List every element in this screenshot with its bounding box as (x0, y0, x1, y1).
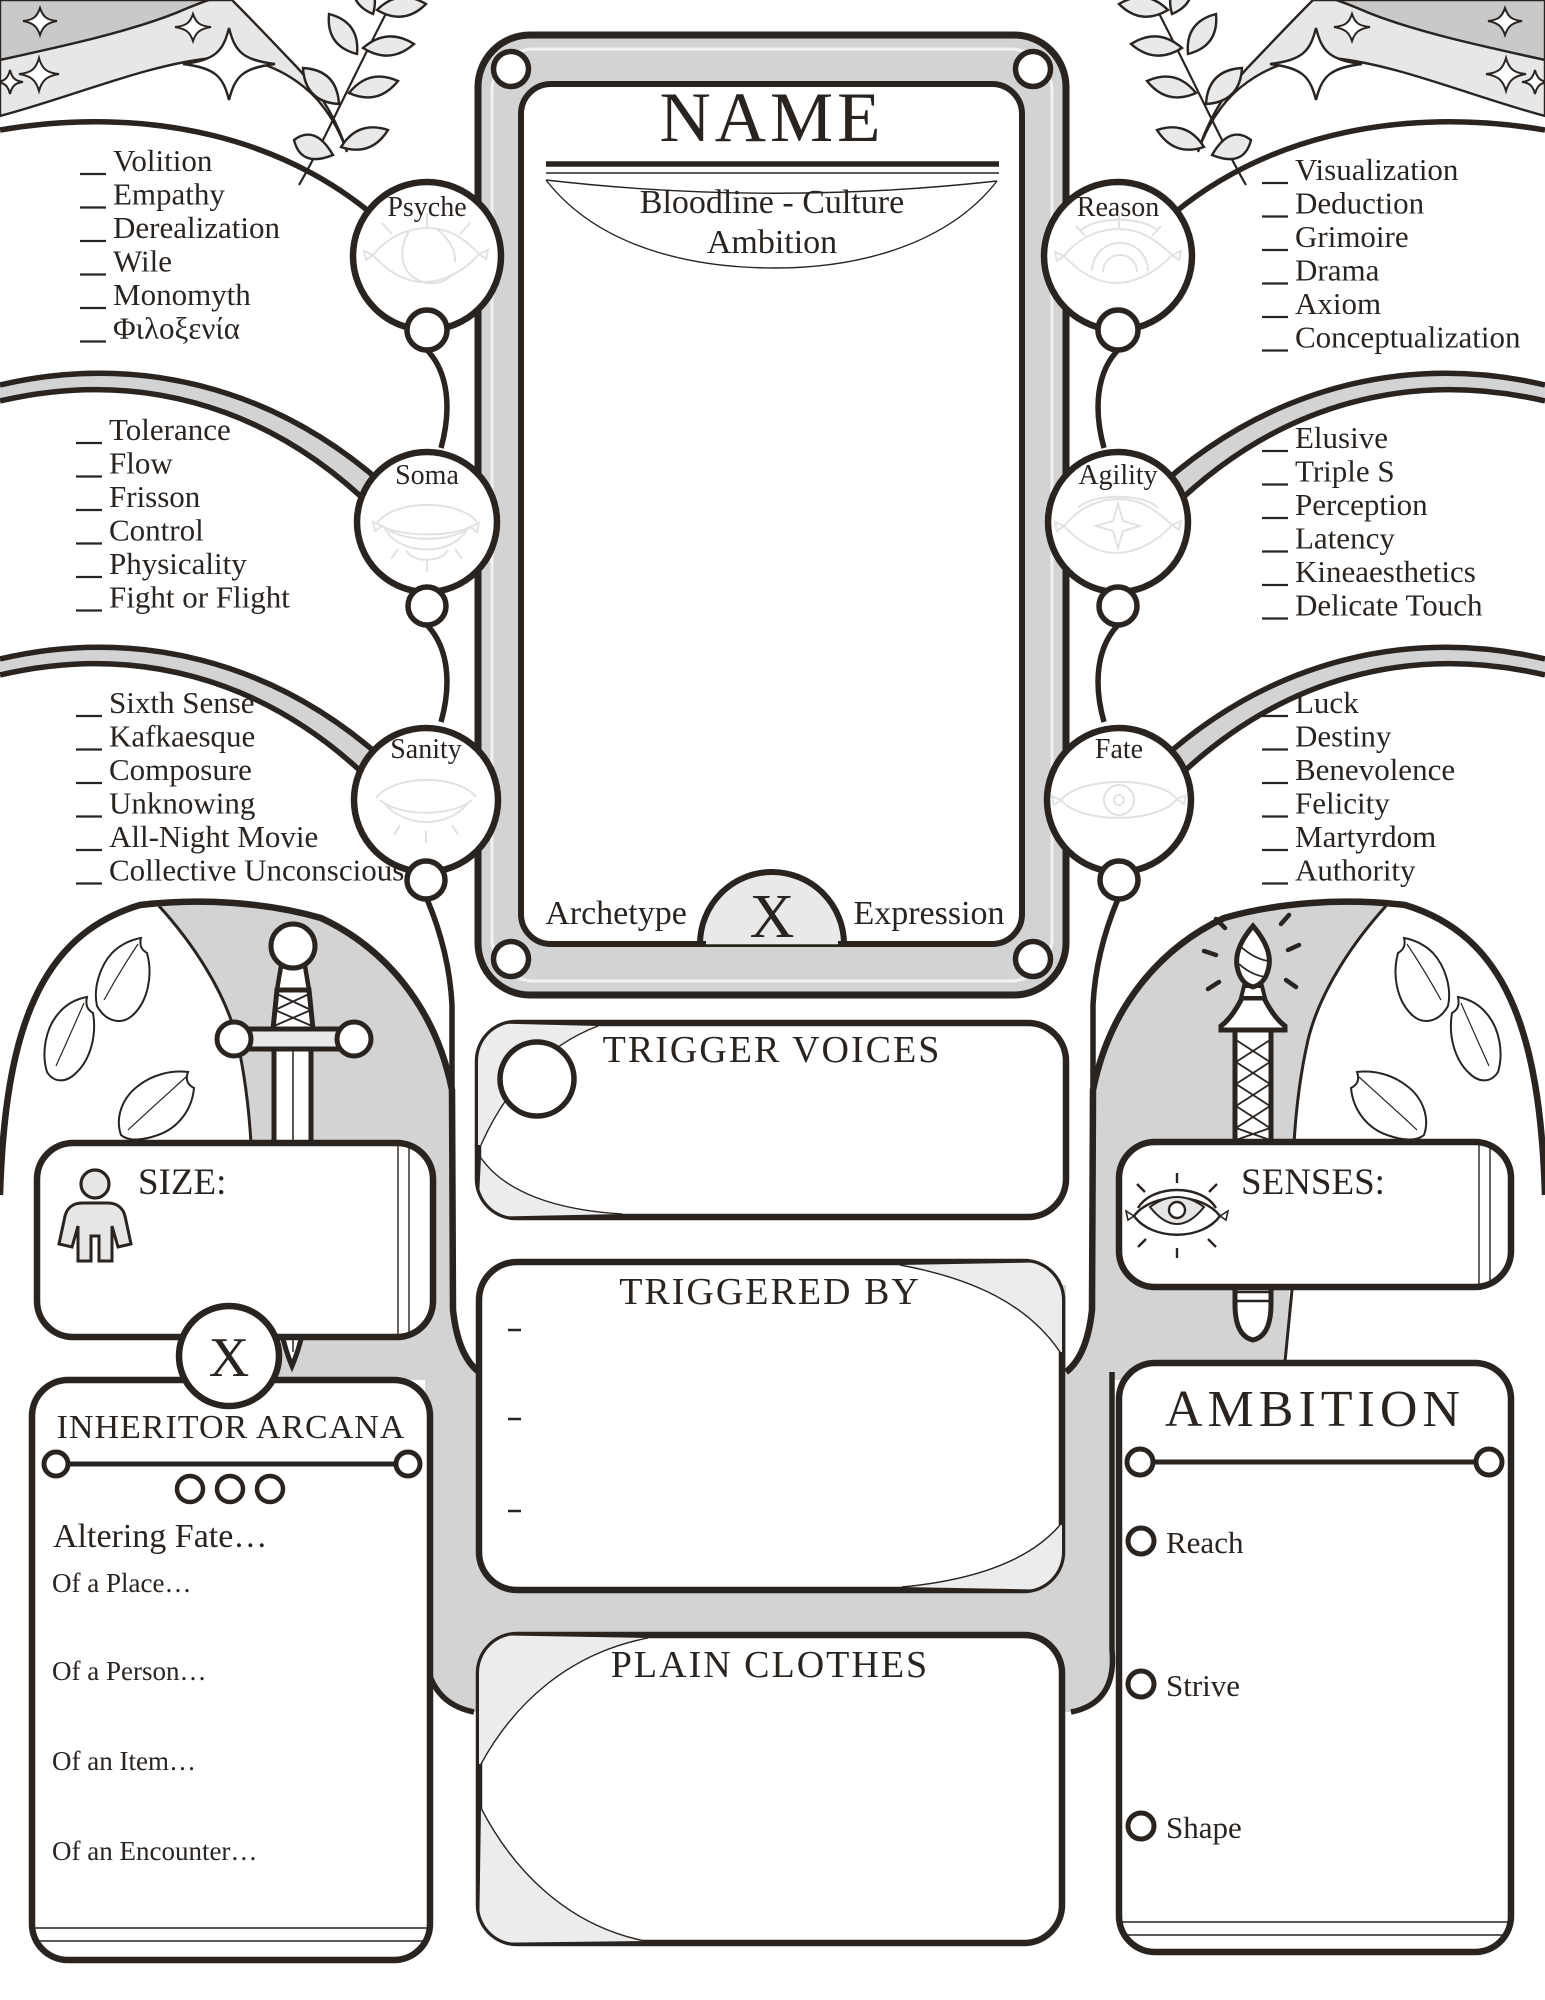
svg-text:Archetype: Archetype (545, 895, 687, 932)
svg-text:Sanity: Sanity (390, 734, 462, 765)
svg-text:Kafkaesque: Kafkaesque (109, 719, 255, 754)
svg-text:NAME: NAME (659, 79, 884, 157)
svg-text:Perception: Perception (1295, 487, 1428, 522)
svg-text:PLAIN CLOTHES: PLAIN CLOTHES (611, 1644, 929, 1686)
svg-text:Altering Fate…: Altering Fate… (53, 1518, 267, 1555)
svg-text:Tolerance: Tolerance (109, 412, 231, 447)
svg-text:Empathy: Empathy (113, 177, 225, 212)
svg-text:Axiom: Axiom (1295, 286, 1381, 321)
svg-text:Martyrdom: Martyrdom (1295, 819, 1436, 854)
svg-text:Volition: Volition (113, 143, 213, 178)
svg-text:SIZE:: SIZE: (138, 1162, 226, 1203)
svg-text:SENSES:: SENSES: (1241, 1162, 1385, 1203)
svg-text:Control: Control (109, 513, 204, 548)
svg-text:Flow: Flow (109, 446, 173, 481)
svg-text:Deduction: Deduction (1295, 186, 1425, 221)
svg-text:Triple S: Triple S (1295, 454, 1395, 489)
svg-text:Conceptualization: Conceptualization (1295, 320, 1521, 355)
svg-text:Bloodline - Culture: Bloodline - Culture (640, 184, 904, 221)
svg-text:X: X (750, 883, 795, 951)
svg-text:Collective Unconscious: Collective Unconscious (109, 853, 404, 888)
svg-text:Felicity: Felicity (1295, 786, 1390, 821)
svg-text:Physicality: Physicality (109, 546, 247, 581)
svg-text:Authority: Authority (1295, 853, 1416, 888)
svg-text:Of an Encounter…: Of an Encounter… (52, 1836, 257, 1866)
svg-text:Grimoire: Grimoire (1295, 219, 1409, 254)
svg-text:Kineaesthetics: Kineaesthetics (1295, 554, 1476, 589)
svg-text:X: X (209, 1327, 249, 1389)
svg-text:Frisson: Frisson (109, 479, 201, 514)
svg-text:Of a Person…: Of a Person… (52, 1656, 206, 1686)
svg-text:Reach: Reach (1166, 1525, 1244, 1560)
svg-text:Composure: Composure (109, 752, 252, 787)
svg-text:Visualization: Visualization (1295, 152, 1459, 187)
svg-text:Sixth Sense: Sixth Sense (109, 685, 255, 720)
svg-text:Ambition: Ambition (707, 224, 837, 261)
svg-text:Wile: Wile (113, 244, 172, 279)
svg-text:Of a Place…: Of a Place… (52, 1568, 191, 1598)
svg-text:Delicate Touch: Delicate Touch (1295, 588, 1483, 623)
svg-text:All-Night Movie: All-Night Movie (109, 819, 318, 854)
svg-text:Luck: Luck (1295, 685, 1359, 720)
svg-text:Unknowing: Unknowing (109, 786, 255, 821)
svg-text:AMBITION: AMBITION (1165, 1381, 1465, 1438)
svg-text:Destiny: Destiny (1295, 719, 1392, 754)
svg-text:Benevolence: Benevolence (1295, 752, 1455, 787)
svg-text:Fight or Flight: Fight or Flight (109, 580, 290, 615)
svg-text:Φιλοξενία: Φιλοξενία (113, 311, 240, 346)
svg-text:Shape: Shape (1166, 1810, 1242, 1845)
svg-text:Latency: Latency (1295, 521, 1395, 556)
svg-text:Expression: Expression (853, 895, 1004, 932)
svg-text:TRIGGERED BY: TRIGGERED BY (619, 1271, 921, 1313)
svg-text:Agility: Agility (1078, 460, 1157, 491)
svg-text:Drama: Drama (1295, 253, 1380, 288)
svg-text:Fate: Fate (1095, 734, 1143, 765)
svg-text:Soma: Soma (395, 460, 459, 491)
svg-text:TRIGGER VOICES: TRIGGER VOICES (603, 1029, 942, 1071)
svg-text:Monomyth: Monomyth (113, 277, 251, 312)
svg-text:Derealization: Derealization (113, 210, 280, 245)
svg-text:Elusive: Elusive (1295, 420, 1388, 455)
svg-text:Of an Item…: Of an Item… (52, 1746, 196, 1776)
svg-text:INHERITOR ARCANA: INHERITOR ARCANA (57, 1409, 406, 1446)
svg-text:Strive: Strive (1166, 1668, 1240, 1703)
